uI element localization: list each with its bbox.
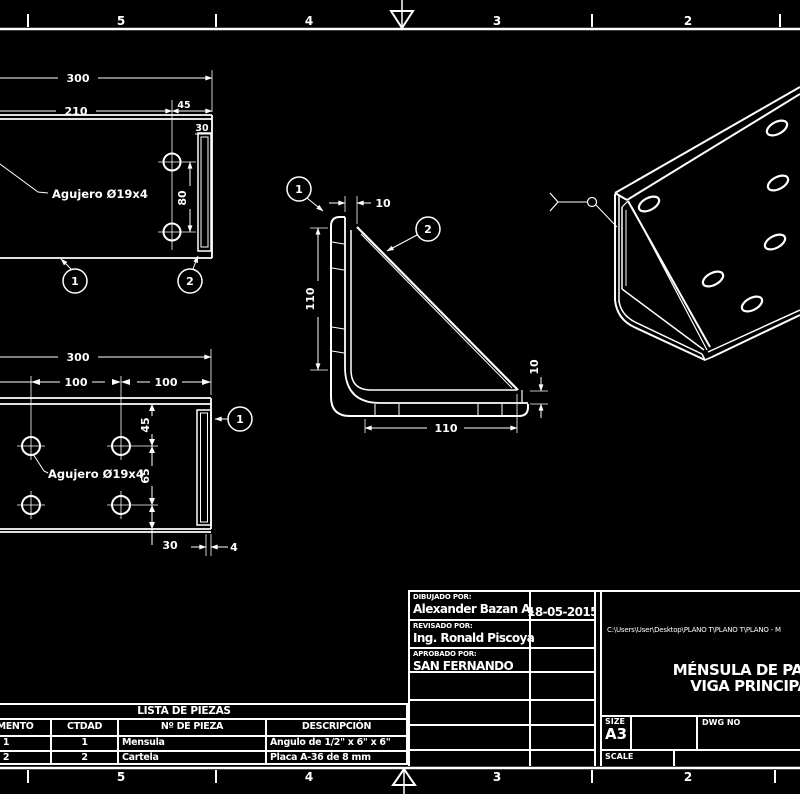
drawing-title-line1: MÉNSULA DE PARED [629,662,800,678]
scale-label: SCALE [605,752,673,761]
dim-4: 4 [230,541,238,554]
reviewed-by-row: REVISADO POR: Ing. Ronald Piscoya [410,621,594,649]
title-block-signatures: DIBUJADO POR: Alexander Bazan A. 18-05-2… [410,592,596,766]
dim-300: 300 [67,351,90,364]
parts-list-row-1: 1 1 Mensula Ángulo de 1/2" x 6" x 6" [0,737,406,752]
dwg-no-cell: DWG NO [698,717,800,750]
qty-cell: 2 [50,752,117,765]
dim-100-right: 100 [155,376,178,389]
scale-cell: SCALE [602,751,675,766]
balloon-2-label: 2 [424,223,432,236]
desc-cell: Ángulo de 1/2" x 6" x 6" [265,737,406,750]
bottom-view-texts: 300 100 100 45 65 30 4 Agujero Ø19x4 1 [48,351,244,554]
empty-row [410,673,594,701]
col-elemento: ELEMENTO [0,720,50,735]
date-value: 18-05-2015 [527,605,594,619]
dim-210: 210 [65,105,88,118]
parts-list-title: LISTA DE PIEZAS [0,705,406,720]
scale-row: SCALE [602,749,800,766]
bottom-view [0,349,252,556]
parts-list-header: ELEMENTO CTDAD Nº DE PIEZA DESCRIPCIÓN [0,720,406,737]
dim-10-right: 10 [528,359,541,375]
qty-cell: 1 [50,737,117,750]
part-cell: Cartela [117,752,265,765]
dim-10-top: 10 [375,197,391,210]
zone-bottom-4: 4 [305,770,313,784]
dim-110-left: 110 [304,287,317,310]
isometric-view [550,87,800,360]
title-block-main: C:\Users\User\Desktop\PLANO T\PLANO T\PL… [600,592,800,766]
size-cell: SIZE A3 [602,717,632,749]
zone-bottom-3: 3 [493,770,501,784]
item-cell: 2 [0,752,50,765]
approved-by-row: APROBADO POR: SAN FERNANDO [410,649,594,673]
dim-110-bottom: 110 [435,422,458,435]
dim-300: 300 [67,72,90,85]
dim-30: 30 [195,123,209,134]
col-n-de-pieza: Nº DE PIEZA [117,720,265,735]
size-value: A3 [605,726,630,743]
top-view-texts: 300 210 45 30 80 Agujero Ø19x4 1 2 [52,72,209,288]
hole-note: Agujero Ø19x4 [48,467,144,481]
desc-cell: Placa A-36 de 8 mm [265,752,406,765]
title-block: DIBUJADO POR: Alexander Bazan A. 18-05-2… [408,590,800,766]
balloon-1-label: 1 [295,183,303,196]
blank-cell [632,717,698,749]
center-mark-bottom-icon [393,769,415,794]
zone-top-5: 5 [117,14,125,28]
size-dwg-grid: SIZE A3 DWG NO SCALE [602,715,800,766]
balloon-1-label: 1 [71,275,79,288]
cad-drawing-canvas: { "colors": { "background": "#000000", "… [0,0,800,794]
empty-row [410,701,594,726]
weld-leader-icon [550,193,617,227]
front-view [287,177,548,433]
balloon-2-label: 2 [186,275,194,288]
hole-note: Agujero Ø19x4 [52,187,148,201]
dim-80: 80 [176,190,189,206]
dim-45: 45 [177,100,190,111]
dim-100-left: 100 [65,376,88,389]
zone-top-2: 2 [684,14,692,28]
part-cell: Mensula [117,737,265,750]
drawing-title-line2: VIGA PRINCIPAL [629,678,800,694]
drawing-title: MÉNSULA DE PARED VIGA PRINCIPAL [629,662,800,694]
zone-top-3: 3 [493,14,501,28]
drawn-by-row: DIBUJADO POR: Alexander Bazan A. 18-05-2… [410,592,594,621]
zone-bottom-5: 5 [117,770,125,784]
center-mark-top-icon [391,0,413,28]
parts-list: LISTA DE PIEZAS ELEMENTO CTDAD Nº DE PIE… [0,703,408,765]
file-path: C:\Users\User\Desktop\PLANO T\PLANO T\PL… [607,626,781,634]
empty-row [410,751,594,766]
col-ctdad: CTDAD [50,720,117,735]
zone-bottom-2: 2 [684,770,692,784]
empty-row [410,726,594,751]
col-descripcion: DESCRIPCIÓN [265,720,406,735]
dim-30: 30 [162,539,178,552]
zone-top-4: 4 [305,14,313,28]
item-cell: 1 [0,737,50,750]
dwg-no-label: DWG NO [702,718,800,727]
parts-list-row-2: 2 2 Cartela Placa A-36 de 8 mm [0,752,406,765]
balloon-1-label: 1 [236,413,244,426]
dim-45: 45 [139,417,152,432]
